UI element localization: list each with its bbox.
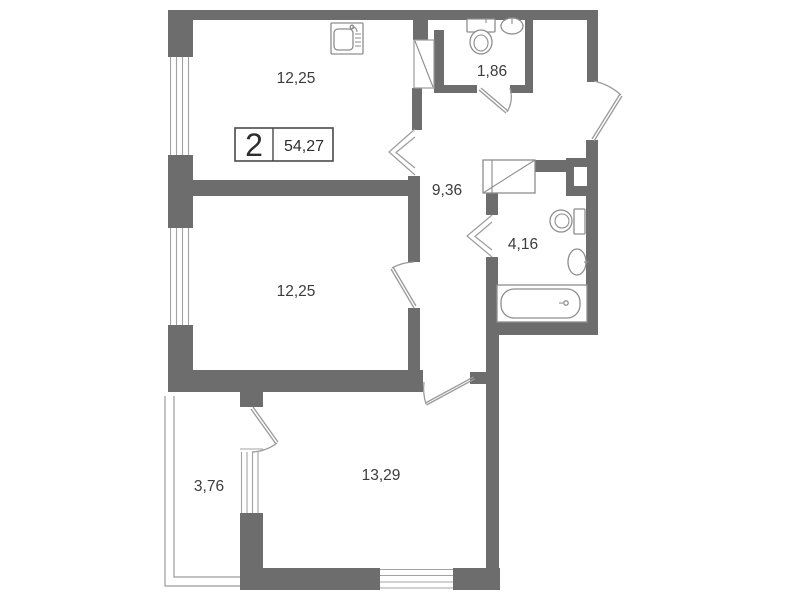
window <box>171 57 189 155</box>
wall <box>434 85 477 93</box>
wall <box>412 88 422 130</box>
wall <box>453 568 500 590</box>
wardrobe <box>483 160 535 193</box>
bathroom-washbasin-icon <box>568 249 589 275</box>
legend: 2 54,27 <box>235 127 333 163</box>
vent-shaft-opening <box>574 167 587 186</box>
wall <box>168 180 417 196</box>
wall <box>240 392 263 407</box>
entrance-door <box>592 81 622 141</box>
kitchen-sink-icon <box>331 23 363 54</box>
floor-plan: 12,25 1,86 9,36 4,16 12,25 13,29 3,76 2 … <box>0 0 799 600</box>
balcony-door <box>251 407 278 452</box>
living-room-door <box>424 377 475 405</box>
bathroom-toilet-icon <box>550 209 585 234</box>
window <box>171 228 189 325</box>
wall <box>168 325 193 372</box>
window <box>380 570 453 589</box>
wall <box>486 335 499 568</box>
wall <box>240 568 380 590</box>
wall <box>413 20 428 40</box>
wall <box>408 308 420 370</box>
wall <box>434 30 444 93</box>
wc-door <box>479 88 511 113</box>
room-label-wc: 1,86 <box>477 63 507 80</box>
wall <box>168 370 423 392</box>
bathtub-icon <box>497 285 587 322</box>
window <box>240 449 263 513</box>
room-label-bathroom: 4,16 <box>508 236 538 253</box>
room-label-kitchen: 12,25 <box>277 70 316 87</box>
wall <box>168 10 193 57</box>
kitchen-opening <box>389 129 415 175</box>
vent-duct <box>414 40 434 88</box>
room-label-bedroom: 12,25 <box>277 283 316 300</box>
wall <box>408 176 420 262</box>
wall <box>525 20 533 93</box>
wc-washbasin-icon <box>501 18 523 34</box>
room-label-living-room: 13,29 <box>362 467 401 484</box>
legend-total-area: 54,27 <box>284 138 324 155</box>
floor-plan-canvas: 12,25 1,86 9,36 4,16 12,25 13,29 3,76 2 … <box>0 0 799 600</box>
room-label-hallway: 9,36 <box>432 182 462 199</box>
wall <box>533 160 570 172</box>
bedroom-door <box>391 262 416 308</box>
wall <box>168 10 598 20</box>
wall <box>486 322 598 335</box>
legend-rooms-count: 2 <box>245 127 263 163</box>
wall <box>486 192 498 215</box>
wc-toilet-icon <box>467 19 495 54</box>
room-label-balcony: 3,76 <box>194 478 224 495</box>
wall <box>587 12 598 82</box>
bathroom-opening <box>467 215 492 257</box>
